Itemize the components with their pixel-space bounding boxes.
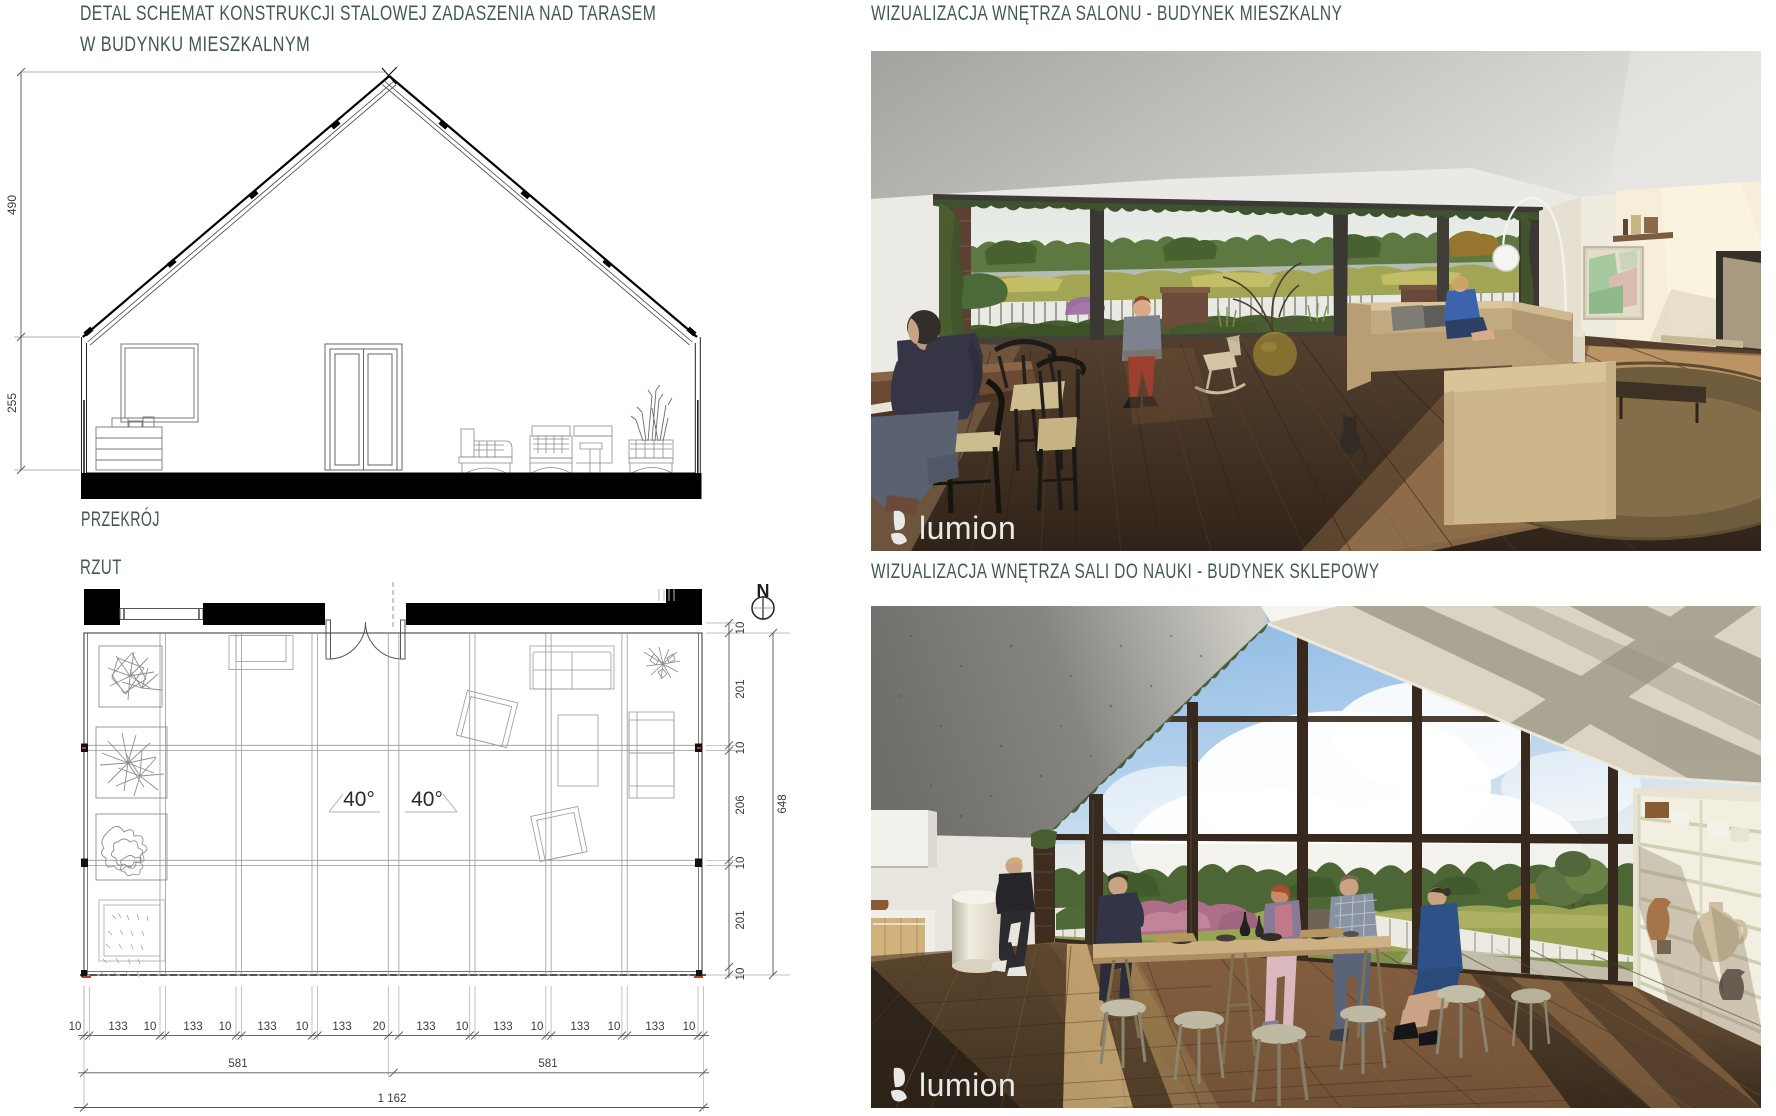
svg-text:206: 206 — [735, 795, 747, 814]
svg-text:10: 10 — [456, 1021, 469, 1033]
svg-text:10: 10 — [735, 857, 747, 870]
svg-text:581: 581 — [538, 1058, 557, 1070]
svg-text:1 162: 1 162 — [378, 1093, 407, 1105]
svg-text:10: 10 — [531, 1021, 544, 1033]
svg-text:10: 10 — [735, 742, 747, 755]
svg-text:10: 10 — [608, 1021, 621, 1033]
svg-text:133: 133 — [183, 1021, 202, 1033]
svg-text:lumion: lumion — [919, 1067, 1016, 1103]
svg-text:10: 10 — [144, 1021, 157, 1033]
svg-text:133: 133 — [108, 1021, 127, 1033]
svg-text:40°: 40° — [343, 788, 375, 811]
svg-text:581: 581 — [228, 1058, 247, 1070]
svg-text:lumion: lumion — [919, 510, 1016, 546]
svg-text:10: 10 — [683, 1021, 696, 1033]
svg-text:10: 10 — [735, 968, 747, 981]
svg-text:201: 201 — [735, 910, 747, 929]
svg-text:20: 20 — [373, 1021, 386, 1033]
svg-text:133: 133 — [257, 1021, 276, 1033]
svg-text:648: 648 — [777, 794, 789, 813]
svg-text:133: 133 — [570, 1021, 589, 1033]
svg-text:490: 490 — [5, 195, 19, 215]
svg-text:40°: 40° — [411, 788, 443, 811]
svg-text:10: 10 — [69, 1021, 82, 1033]
svg-text:255: 255 — [5, 393, 19, 413]
svg-text:133: 133 — [416, 1021, 435, 1033]
svg-text:201: 201 — [735, 679, 747, 698]
svg-text:10: 10 — [296, 1021, 309, 1033]
svg-text:133: 133 — [493, 1021, 512, 1033]
svg-text:133: 133 — [645, 1021, 664, 1033]
svg-text:10: 10 — [735, 622, 747, 635]
svg-text:10: 10 — [219, 1021, 232, 1033]
svg-text:133: 133 — [332, 1021, 351, 1033]
